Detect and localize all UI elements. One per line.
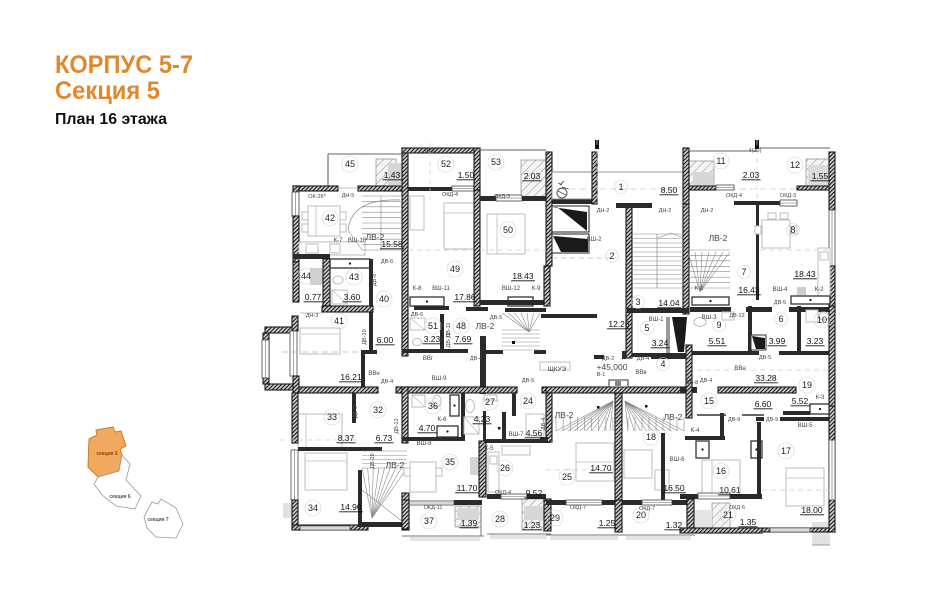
svg-text:43: 43 xyxy=(349,272,359,282)
svg-text:16.43: 16.43 xyxy=(738,285,760,295)
svg-text:3.23: 3.23 xyxy=(807,336,824,346)
svg-text:18.43: 18.43 xyxy=(512,271,534,281)
svg-text:32: 32 xyxy=(373,405,383,415)
svg-text:К-2: К-2 xyxy=(815,287,824,293)
svg-text:ВШ-8: ВШ-8 xyxy=(417,441,432,447)
svg-text:2.03: 2.03 xyxy=(524,171,541,181)
svg-text:ДН-2: ДН-2 xyxy=(701,208,714,214)
svg-text:8: 8 xyxy=(790,225,795,235)
svg-text:К-3: К-3 xyxy=(816,395,825,401)
svg-text:ЛВ-2: ЛВ-2 xyxy=(366,232,385,242)
svg-text:14.90: 14.90 xyxy=(340,502,362,512)
svg-text:29: 29 xyxy=(550,513,560,523)
svg-text:ВШ-1: ВШ-1 xyxy=(649,317,664,323)
svg-text:12.26: 12.26 xyxy=(608,319,630,329)
svg-text:ДВ-9: ДВ-9 xyxy=(766,417,778,423)
svg-text:16.21: 16.21 xyxy=(340,372,362,382)
svg-text:1.39: 1.39 xyxy=(461,518,478,528)
svg-text:5.51: 5.51 xyxy=(709,336,726,346)
svg-text:34: 34 xyxy=(308,503,318,513)
svg-text:1.23: 1.23 xyxy=(524,520,541,530)
svg-text:К-4: К-4 xyxy=(691,428,700,434)
svg-text:9.52: 9.52 xyxy=(526,488,543,498)
svg-text:ЩКУЭ: ЩКУЭ xyxy=(548,366,567,373)
svg-text:ДН-2: ДН-2 xyxy=(659,208,672,214)
svg-text:ВВв: ВВв xyxy=(635,370,646,376)
svg-text:1.35: 1.35 xyxy=(740,517,757,527)
svg-text:ДВ-5: ДВ-5 xyxy=(759,355,771,361)
svg-text:33: 33 xyxy=(327,412,337,422)
svg-text:4: 4 xyxy=(660,359,665,369)
svg-text:9: 9 xyxy=(716,320,721,330)
svg-text:28: 28 xyxy=(495,514,505,524)
svg-text:2.03: 2.03 xyxy=(743,170,760,180)
svg-text:10.61: 10.61 xyxy=(719,485,741,495)
svg-text:8.37: 8.37 xyxy=(338,433,355,443)
svg-text:24: 24 xyxy=(523,396,533,406)
svg-text:3: 3 xyxy=(635,297,640,307)
svg-text:ДН-2: ДН-2 xyxy=(597,208,610,214)
svg-text:6.00: 6.00 xyxy=(377,335,394,345)
svg-text:ОКД-4: ОКД-4 xyxy=(726,193,742,199)
svg-text:ДВ-8: ДВ-8 xyxy=(372,274,378,286)
svg-text:ОКД-3: ОКД-3 xyxy=(494,194,510,200)
svg-text:15.58: 15.58 xyxy=(381,239,403,249)
svg-text:35: 35 xyxy=(445,457,455,467)
svg-text:ВШ-6: ВШ-6 xyxy=(670,457,685,463)
svg-text:ОКД-6: ОКД-6 xyxy=(729,505,745,511)
svg-text:ОК-26*: ОК-26* xyxy=(308,194,326,200)
svg-text:+45,000: +45,000 xyxy=(597,362,628,372)
svg-text:К-6: К-6 xyxy=(438,417,447,423)
svg-text:15: 15 xyxy=(704,396,714,406)
svg-text:ДВ-5: ДВ-5 xyxy=(774,300,786,306)
svg-text:ВШ-3: ВШ-3 xyxy=(702,315,717,321)
svg-text:26: 26 xyxy=(500,463,510,473)
svg-text:25: 25 xyxy=(562,472,572,482)
svg-text:ДВ-12: ДВ-12 xyxy=(394,418,400,433)
svg-text:1.32: 1.32 xyxy=(666,520,683,530)
svg-text:17.86: 17.86 xyxy=(454,292,476,302)
svg-text:ДВ-10: ДВ-10 xyxy=(362,329,368,344)
svg-text:53: 53 xyxy=(491,157,501,167)
svg-text:секция 6: секция 6 xyxy=(109,494,131,500)
svg-text:14.70: 14.70 xyxy=(590,463,612,473)
svg-text:3.23: 3.23 xyxy=(424,334,441,344)
svg-text:11: 11 xyxy=(716,156,725,166)
svg-text:14.04: 14.04 xyxy=(658,298,680,308)
svg-text:ДВ-4: ДВ-4 xyxy=(541,418,547,430)
svg-text:48: 48 xyxy=(456,321,466,331)
svg-text:ДВ-4: ДВ-4 xyxy=(637,356,649,362)
svg-text:41: 41 xyxy=(334,316,344,326)
svg-text:42: 42 xyxy=(325,213,335,223)
svg-text:ДВ-10: ДВ-10 xyxy=(370,453,376,468)
svg-text:2: 2 xyxy=(609,251,614,261)
svg-text:ДВ-9: ДВ-9 xyxy=(728,417,740,423)
svg-text:4(20): 4(20) xyxy=(424,148,437,154)
svg-text:План 16 этажа: План 16 этажа xyxy=(55,111,167,128)
svg-text:ДВ-12: ДВ-12 xyxy=(729,313,744,319)
svg-text:37: 37 xyxy=(424,516,434,526)
svg-text:21: 21 xyxy=(723,510,733,520)
svg-text:3.24: 3.24 xyxy=(652,338,669,348)
svg-text:КОРПУС 5-7: КОРПУС 5-7 xyxy=(55,51,193,79)
svg-text:К-1: К-1 xyxy=(695,286,704,292)
svg-text:ОКД-7: ОКД-7 xyxy=(570,505,586,511)
svg-text:1.25: 1.25 xyxy=(599,518,616,528)
svg-text:ОКД-4: ОКД-4 xyxy=(442,192,458,198)
svg-text:16: 16 xyxy=(716,466,726,476)
svg-text:12: 12 xyxy=(790,160,800,170)
svg-text:ДВ-4: ДВ-4 xyxy=(470,356,482,362)
svg-text:44: 44 xyxy=(301,271,311,281)
svg-text:11.70: 11.70 xyxy=(457,483,478,493)
svg-text:ВШ-5: ВШ-5 xyxy=(798,423,813,429)
svg-text:10: 10 xyxy=(817,315,827,325)
svg-text:ДН-5: ДН-5 xyxy=(342,193,355,199)
svg-text:5.52: 5.52 xyxy=(792,396,809,406)
svg-text:ЛВ-2: ЛВ-2 xyxy=(476,321,495,331)
svg-text:ВШ-2: ВШ-2 xyxy=(587,237,602,243)
svg-text:7: 7 xyxy=(741,267,746,277)
svg-text:ОКД-3: ОКД-3 xyxy=(780,193,796,199)
svg-text:51: 51 xyxy=(428,321,438,331)
svg-text:ДВ-5: ДВ-5 xyxy=(522,378,534,384)
svg-text:5: 5 xyxy=(644,323,649,333)
svg-text:50: 50 xyxy=(503,225,513,235)
svg-text:ДВ-4: ДВ-4 xyxy=(381,379,393,385)
svg-text:6: 6 xyxy=(778,314,783,324)
svg-text:ОКД-4: ОКД-4 xyxy=(495,490,511,496)
svg-text:1.50: 1.50 xyxy=(458,170,475,180)
svg-text:27: 27 xyxy=(485,397,495,407)
svg-text:8.50: 8.50 xyxy=(661,185,678,195)
svg-text:ВВг: ВВг xyxy=(423,356,434,362)
svg-text:ДВ-8: ДВ-8 xyxy=(686,380,698,386)
svg-text:1: 1 xyxy=(618,182,623,192)
svg-text:17: 17 xyxy=(781,446,791,456)
svg-text:36: 36 xyxy=(428,401,438,411)
svg-text:секция 5: секция 5 xyxy=(96,451,118,457)
svg-text:ВШ-10: ВШ-10 xyxy=(348,238,367,244)
svg-text:40: 40 xyxy=(379,294,389,304)
svg-text:ДВ-6: ДВ-6 xyxy=(411,312,423,318)
svg-text:ДВ-9: ДВ-9 xyxy=(353,406,359,418)
svg-text:К-8: К-8 xyxy=(413,286,422,292)
svg-text:3.60: 3.60 xyxy=(344,292,361,302)
svg-text:Секция 5: Секция 5 xyxy=(55,77,160,105)
svg-text:К-9: К-9 xyxy=(532,286,541,292)
svg-text:ВШ-11: ВШ-11 xyxy=(432,286,450,292)
svg-text:4.23: 4.23 xyxy=(474,414,491,424)
svg-text:33.28: 33.28 xyxy=(755,373,777,383)
svg-text:ДВ-11: ДВ-11 xyxy=(446,333,452,348)
svg-text:1.55: 1.55 xyxy=(812,171,829,181)
svg-text:18.00: 18.00 xyxy=(801,505,823,515)
svg-text:16.50: 16.50 xyxy=(663,483,685,493)
svg-text:ЛВ-2: ЛВ-2 xyxy=(386,460,405,470)
svg-text:6.73: 6.73 xyxy=(376,433,393,443)
svg-text:К-7: К-7 xyxy=(334,238,343,244)
svg-text:1.43: 1.43 xyxy=(384,170,401,180)
svg-text:19: 19 xyxy=(802,380,812,390)
svg-text:ВШ-4: ВШ-4 xyxy=(773,287,788,293)
svg-text:ОКД-11: ОКД-11 xyxy=(424,505,443,511)
svg-text:ВШ-12: ВШ-12 xyxy=(502,286,521,292)
svg-text:4.70: 4.70 xyxy=(419,423,436,433)
svg-text:ВВн: ВВн xyxy=(734,366,745,372)
svg-text:ЛВ-2: ЛВ-2 xyxy=(664,412,683,422)
svg-text:ВШ-7: ВШ-7 xyxy=(509,432,524,438)
svg-text:ДВ-4: ДВ-4 xyxy=(700,378,712,384)
svg-text:18.43: 18.43 xyxy=(794,269,816,279)
svg-text:секция 7: секция 7 xyxy=(147,517,169,523)
svg-text:49: 49 xyxy=(450,264,460,274)
svg-text:ЛВ-2: ЛВ-2 xyxy=(709,233,728,243)
svg-text:ОКД-7: ОКД-7 xyxy=(639,506,655,512)
svg-text:ЛВ-2: ЛВ-2 xyxy=(555,410,574,420)
svg-text:ДВ-6: ДВ-6 xyxy=(381,259,393,265)
svg-text:ВВн: ВВн xyxy=(368,371,379,377)
svg-text:45: 45 xyxy=(345,159,355,169)
svg-text:7.69: 7.69 xyxy=(455,334,472,344)
svg-text:ДН-3: ДН-3 xyxy=(306,313,319,319)
svg-text:52: 52 xyxy=(441,159,451,169)
svg-text:0.77: 0.77 xyxy=(305,292,322,302)
svg-text:К-5: К-5 xyxy=(485,446,494,452)
svg-text:6.60: 6.60 xyxy=(755,399,772,409)
svg-text:В-1: В-1 xyxy=(597,372,606,378)
svg-text:ВШ-9: ВШ-9 xyxy=(432,376,447,382)
svg-text:3.99: 3.99 xyxy=(769,336,786,346)
svg-text:18: 18 xyxy=(646,432,656,442)
svg-text:4(20): 4(20) xyxy=(749,148,762,154)
